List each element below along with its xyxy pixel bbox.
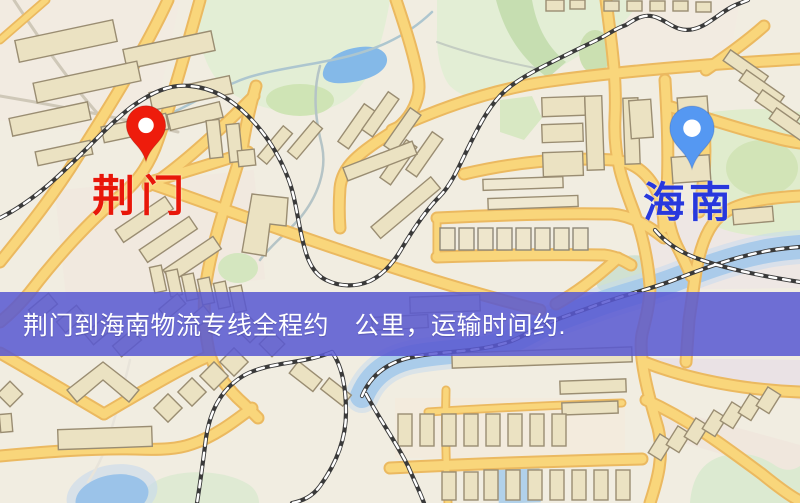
destination-pin-icon bbox=[665, 103, 719, 173]
origin-pin-shape bbox=[126, 106, 165, 162]
destination-pin[interactable] bbox=[665, 103, 719, 173]
origin-label: 荆门 bbox=[92, 176, 190, 219]
origin-pin-icon bbox=[122, 103, 170, 165]
destination-label: 海南 bbox=[643, 182, 735, 224]
origin-pin[interactable] bbox=[122, 103, 170, 165]
map-screenshot: 荆门 海南 荆门到海南物流专线全程约 公里，运输时间约. bbox=[0, 0, 800, 503]
route-info-text: 荆门到海南物流专线全程约 公里，运输时间约. bbox=[0, 306, 566, 342]
map-canvas[interactable] bbox=[0, 0, 800, 503]
route-info-banner: 荆门到海南物流专线全程约 公里，运输时间约. bbox=[0, 292, 800, 356]
destination-pin-shape bbox=[670, 106, 714, 169]
